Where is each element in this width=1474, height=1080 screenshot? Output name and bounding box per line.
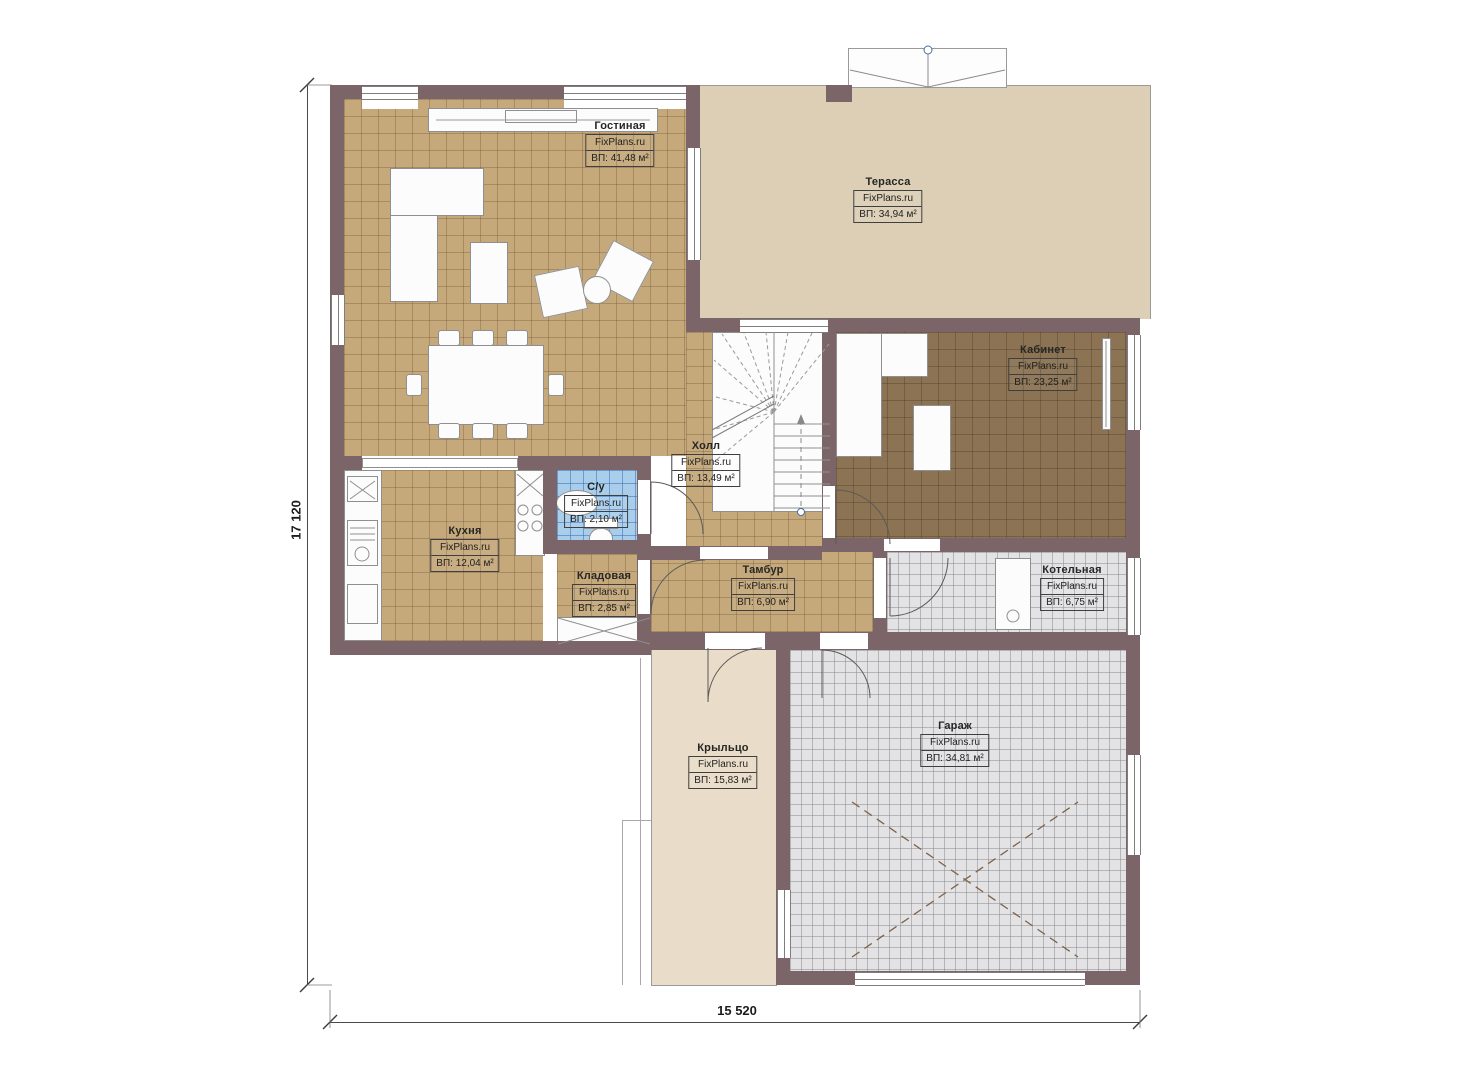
terrace-floor <box>700 85 1151 319</box>
door-opening <box>638 560 650 614</box>
dimension-line-left <box>307 85 308 985</box>
site-line <box>622 820 651 821</box>
room-area: ВП: 6,90 м² <box>732 595 794 610</box>
room-info-box: FixPlans.ru ВП: 41,48 м² <box>585 134 654 167</box>
room-info-box: FixPlans.ru ВП: 2,85 м² <box>572 584 636 617</box>
room-area: ВП: 23,25 м² <box>1009 375 1076 390</box>
chair-icon <box>506 423 528 439</box>
room-label-kitchen: Кухня FixPlans.ru ВП: 12,04 м² <box>430 525 499 572</box>
room-area: ВП: 34,94 м² <box>854 207 921 222</box>
chair-icon <box>506 330 528 346</box>
chair-icon <box>548 374 564 396</box>
dimension-bottom-label: 15 520 <box>717 1003 757 1018</box>
room-area: ВП: 2,10 м² <box>565 512 627 527</box>
chair-icon <box>472 423 494 439</box>
room-label-living: Гостиная FixPlans.ru ВП: 41,48 м² <box>585 120 654 167</box>
sink-icon <box>347 520 378 566</box>
watermark: FixPlans.ru <box>1009 359 1076 375</box>
room-name: Тамбур <box>731 564 795 576</box>
room-name: Кабинет <box>1008 344 1077 356</box>
watermark: FixPlans.ru <box>921 735 988 751</box>
room-area: ВП: 15,83 м² <box>689 773 756 788</box>
window <box>740 319 828 333</box>
room-info-box: FixPlans.ru ВП: 34,94 м² <box>853 190 922 223</box>
room-name: Кладовая <box>572 570 636 582</box>
site-line <box>640 658 641 985</box>
watermark: FixPlans.ru <box>565 496 627 512</box>
room-label-office: Кабинет FixPlans.ru ВП: 23,25 м² <box>1008 344 1077 391</box>
wall <box>822 538 1140 552</box>
room-label-garage: Гараж FixPlans.ru ВП: 34,81 м² <box>920 720 989 767</box>
watermark: FixPlans.ru <box>1041 579 1103 595</box>
room-label-porch: Крыльцо FixPlans.ru ВП: 15,83 м² <box>688 742 757 789</box>
room-info-box: FixPlans.ru ВП: 6,90 м² <box>731 578 795 611</box>
door-opening <box>823 486 835 538</box>
chimney-block <box>826 85 852 102</box>
garage-door <box>855 972 1085 986</box>
room-label-terrace: Терасса FixPlans.ru ВП: 34,94 м² <box>853 176 922 223</box>
room-name: Холл <box>671 440 740 452</box>
door-opening <box>884 539 940 551</box>
window <box>362 86 418 100</box>
wall <box>518 456 651 470</box>
room-name: Крыльцо <box>688 742 757 754</box>
door-opening <box>820 633 868 649</box>
room-name: Котельная <box>1040 564 1104 576</box>
window <box>1127 755 1141 855</box>
round-table-icon <box>583 276 611 304</box>
room-label-boiler: Котельная FixPlans.ru ВП: 6,75 м² <box>1040 564 1104 611</box>
window <box>687 148 701 260</box>
wall <box>330 85 344 655</box>
watermark: FixPlans.ru <box>672 455 739 471</box>
dimension-left-label: 17 120 <box>289 500 304 540</box>
watermark: FixPlans.ru <box>586 135 653 151</box>
chair-icon <box>438 423 460 439</box>
coffee-table-icon <box>470 242 508 304</box>
radiator-icon <box>1102 338 1111 430</box>
room-info-box: FixPlans.ru ВП: 34,81 м² <box>920 734 989 767</box>
sofa-icon <box>390 168 484 216</box>
boiler-unit-icon <box>995 558 1031 630</box>
room-area: ВП: 12,04 м² <box>431 556 498 571</box>
room-name: Терасса <box>853 176 922 188</box>
watermark: FixPlans.ru <box>689 757 756 773</box>
roof-overhang <box>848 48 1007 88</box>
room-label-hall: Холл FixPlans.ru ВП: 13,49 м² <box>671 440 740 487</box>
room-name: С/у <box>564 481 628 493</box>
sofa-icon <box>836 333 882 457</box>
room-info-box: FixPlans.ru ВП: 6,75 м² <box>1040 578 1104 611</box>
room-info-box: FixPlans.ru ВП: 2,10 м² <box>564 495 628 528</box>
door-opening <box>874 558 886 618</box>
room-label-vestibule: Тамбур FixPlans.ru ВП: 6,90 м² <box>731 564 795 611</box>
door-opening <box>700 547 768 559</box>
window <box>331 295 345 345</box>
door-opening <box>705 633 765 649</box>
watermark: FixPlans.ru <box>431 540 498 556</box>
porch-floor <box>651 650 777 986</box>
room-label-storage: Кладовая FixPlans.ru ВП: 2,85 м² <box>572 570 636 617</box>
wall <box>543 540 651 554</box>
chair-icon <box>406 374 422 396</box>
room-area: ВП: 13,49 м² <box>672 471 739 486</box>
armchair-icon <box>534 266 588 319</box>
room-info-box: FixPlans.ru ВП: 23,25 м² <box>1008 358 1077 391</box>
site-line <box>622 820 623 985</box>
room-label-bathroom: С/у FixPlans.ru ВП: 2,10 м² <box>564 481 628 528</box>
room-name: Гостиная <box>585 120 654 132</box>
cabinet-icon <box>347 584 378 624</box>
room-name: Кухня <box>430 525 499 537</box>
watermark: FixPlans.ru <box>732 579 794 595</box>
door-opening <box>638 480 650 534</box>
room-area: ВП: 2,85 м² <box>573 601 635 616</box>
room-info-box: FixPlans.ru ВП: 12,04 м² <box>430 539 499 572</box>
window <box>777 890 791 958</box>
tv-icon <box>505 110 577 123</box>
stove-icon <box>515 470 545 556</box>
chair-icon <box>472 330 494 346</box>
counter-pass-through <box>362 458 518 468</box>
floor-plan-canvas: 17 120 15 520 Гостиная FixPlans.ru ВП: 4… <box>0 0 1474 1080</box>
wall <box>344 456 362 470</box>
dining-table-icon <box>428 345 544 425</box>
desk-icon <box>913 405 951 471</box>
chair-icon <box>438 330 460 346</box>
window <box>564 86 686 100</box>
cooktop-box-icon <box>347 476 378 502</box>
window <box>1127 558 1141 635</box>
room-info-box: FixPlans.ru ВП: 13,49 м² <box>671 454 740 487</box>
window-sill <box>362 99 418 109</box>
watermark: FixPlans.ru <box>854 191 921 207</box>
room-info-box: FixPlans.ru ВП: 15,83 м² <box>688 756 757 789</box>
room-area: ВП: 34,81 м² <box>921 751 988 766</box>
garage-floor <box>790 650 1126 971</box>
dimension-line-bottom <box>330 1022 1140 1023</box>
room-area: ВП: 41,48 м² <box>586 151 653 166</box>
room-area: ВП: 6,75 м² <box>1041 595 1103 610</box>
window <box>1127 335 1141 430</box>
room-name: Гараж <box>920 720 989 732</box>
watermark: FixPlans.ru <box>573 585 635 601</box>
wall <box>330 641 651 655</box>
